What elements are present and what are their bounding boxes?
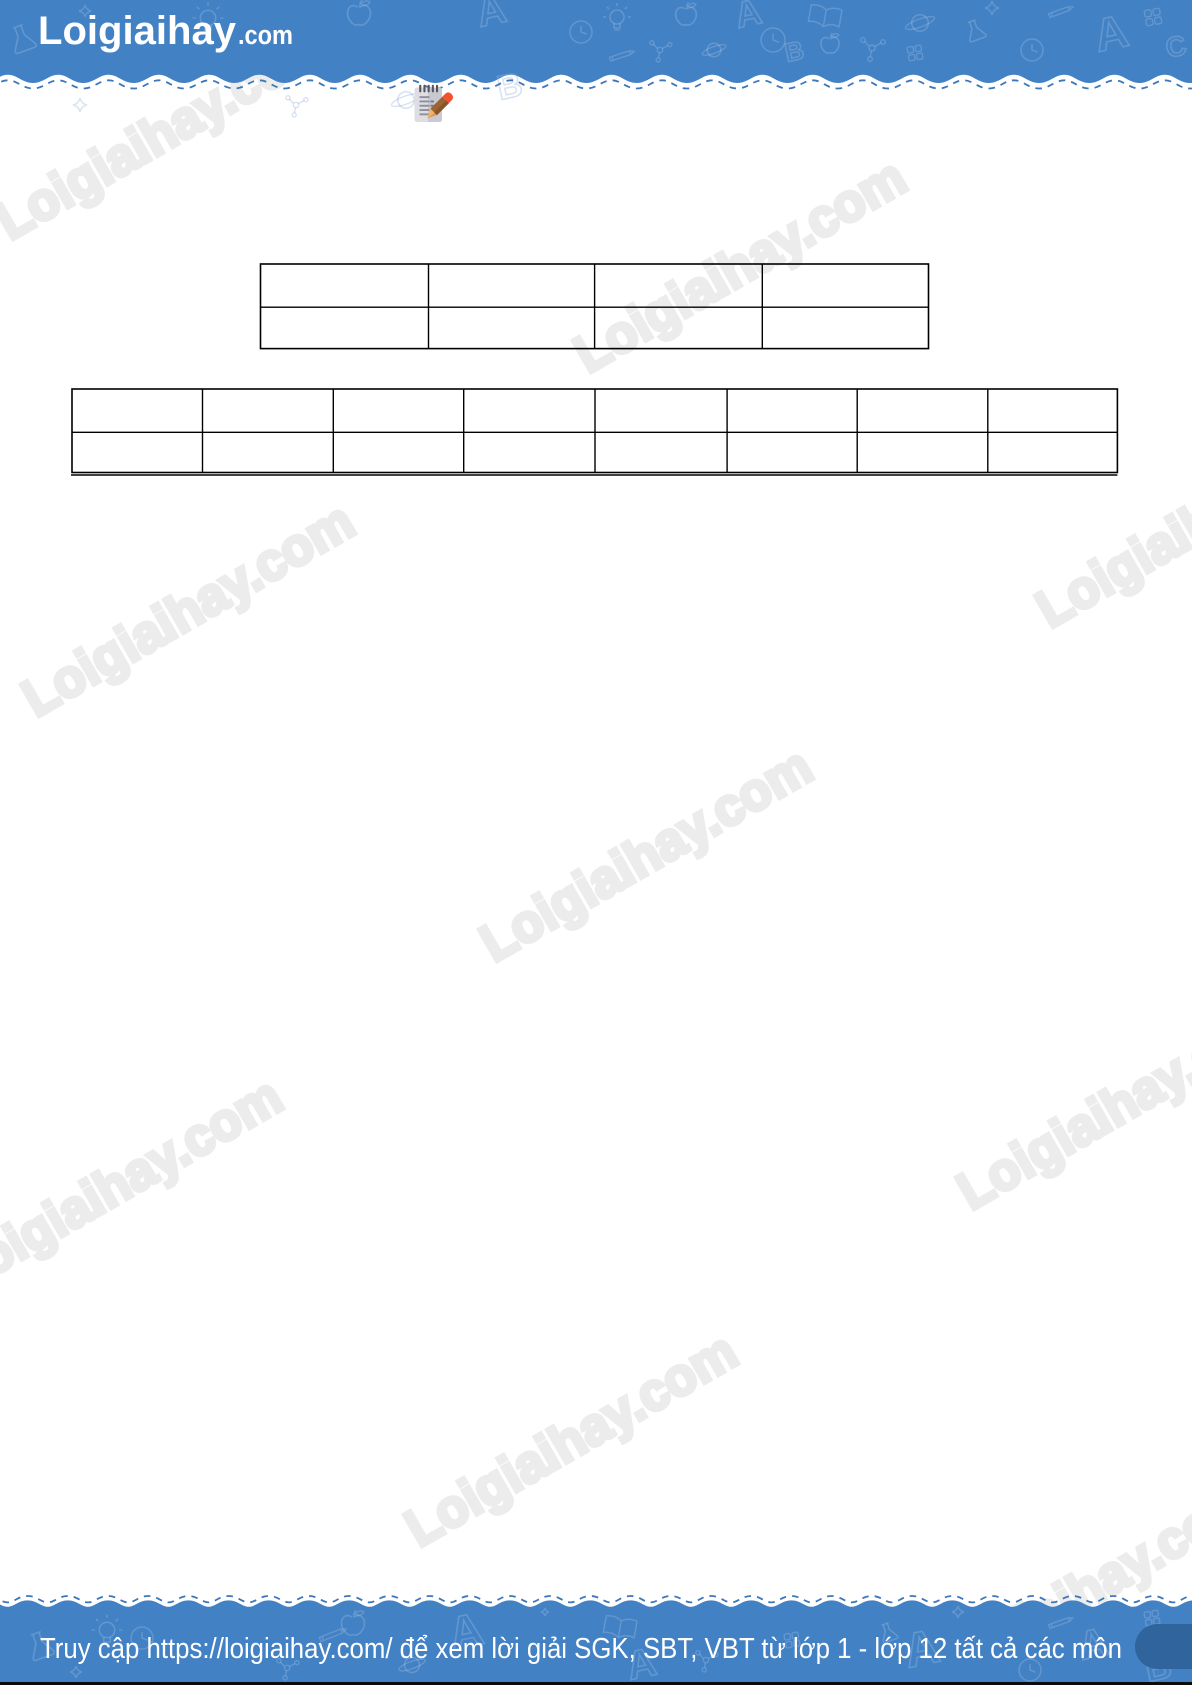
svg-text:Loigiaihay.com: Loigiaihay.com bbox=[13, 491, 365, 728]
svg-text:.com: .com bbox=[238, 20, 293, 50]
svg-text:Loigiaihay.com: Loigiaihay.com bbox=[471, 736, 823, 973]
svg-text:Loigiaihay.com: Loigiaihay.com bbox=[396, 1321, 748, 1558]
svg-text:Loigiaihay.com: Loigiaihay.com bbox=[0, 1066, 292, 1303]
svg-text:Loigiaihay.com: Loigiaihay.com bbox=[948, 984, 1192, 1221]
svg-text:Truy cập https://loigiaihay.co: Truy cập https://loigiaihay.com/ để xem … bbox=[40, 1633, 1122, 1665]
svg-text:Loigiaihay: Loigiaihay bbox=[38, 9, 237, 53]
svg-text:Loigiaihay.com: Loigiaihay.com bbox=[1027, 402, 1192, 639]
